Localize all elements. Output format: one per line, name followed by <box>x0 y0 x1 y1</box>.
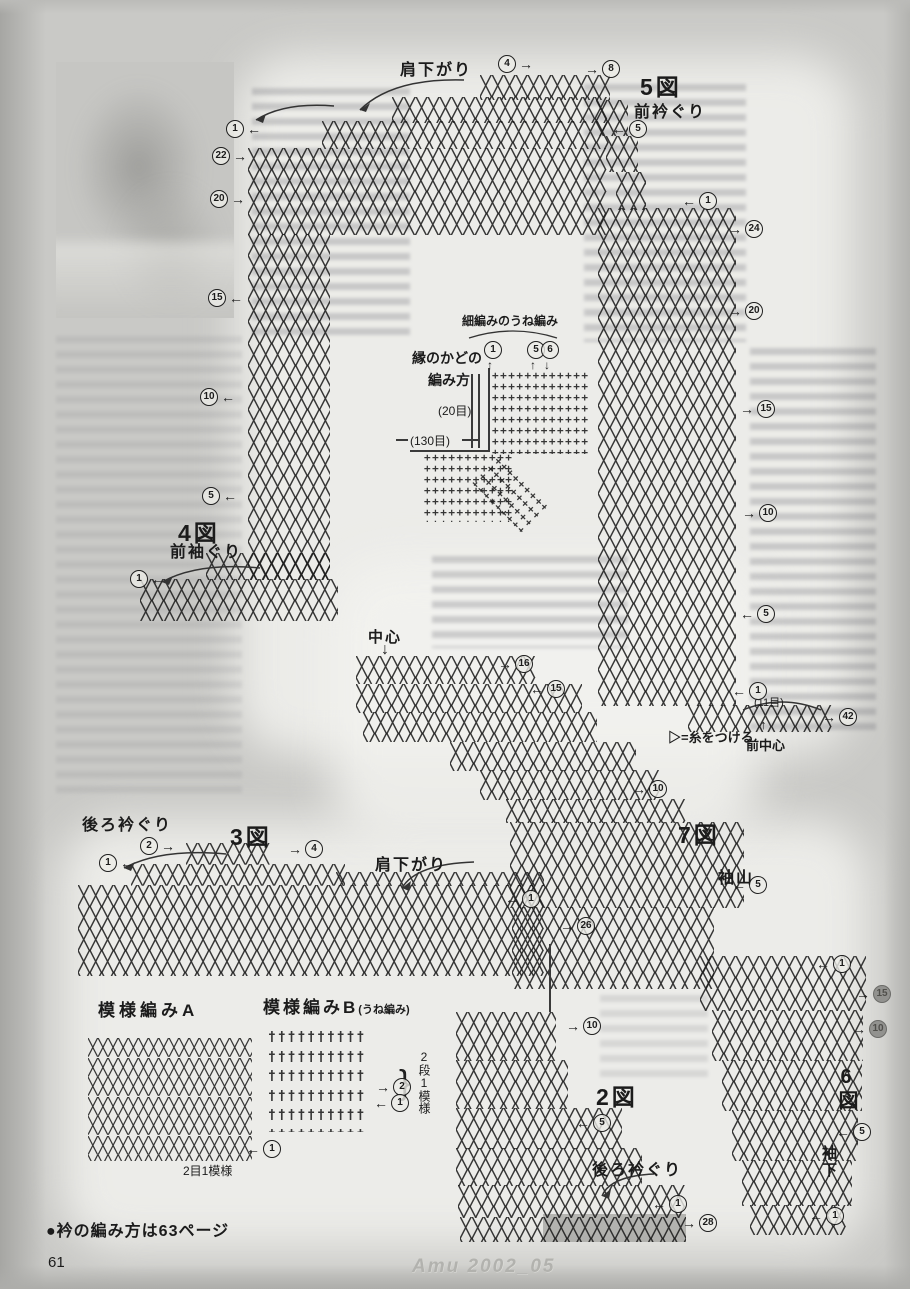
fig2-back-neck-label: 後ろ衿ぐり <box>592 1156 682 1180</box>
fig2-title: 2図 <box>596 1078 638 1112</box>
fig5-title: 5図 <box>640 68 682 102</box>
connector-line <box>549 944 551 1012</box>
circled-row-number: 1 <box>130 570 148 588</box>
corner-frame-line <box>488 368 490 452</box>
row1-curve-arrow <box>250 100 338 128</box>
circled-row-number: 1 <box>833 955 851 973</box>
row-callout-15: →15 <box>740 400 775 418</box>
circled-row-number: 10 <box>200 388 218 406</box>
callout-arrow-icon: → <box>822 710 836 724</box>
fig6-underarm-label: 袖下 <box>818 1145 839 1179</box>
row-callout-5: 5← <box>202 487 237 505</box>
showthrough-text <box>600 995 708 1079</box>
circled-row-number: 6 <box>541 341 559 359</box>
row-callout-16: →16 <box>498 655 533 673</box>
fig6-title: 6図 <box>832 1066 861 1112</box>
faded-photo <box>56 62 234 318</box>
row-callout-10: →10 <box>742 504 777 522</box>
fig3-shoulder-label: 肩下がり <box>375 851 447 875</box>
magazine-page: ╳╳╳╳╳╳╳╳╳╳╳ ╳╳╳╳╳╳╳╳╳╳╳╳╳╳╳╳╳╳╳╳╳╳╳╳╳╳╳╳… <box>0 0 910 1289</box>
row-callout-10: 10← <box>200 388 235 406</box>
fig7-title: 7図 <box>678 816 720 850</box>
callout-arrow-icon: → <box>161 839 175 853</box>
row-callout-15: 15← <box>208 289 243 307</box>
row-callout-22: 22→ <box>212 147 247 165</box>
row-callout-28: →28 <box>682 1214 717 1232</box>
crochet-chart-block: ++++++++++++ ++++++++++++ ++++++++++++ +… <box>492 370 590 454</box>
fig5-front-neck-label: 前衿ぐり <box>634 98 706 122</box>
row-callout-1: ←1 <box>816 955 851 973</box>
crochet-chart-block: ╳╳╳╳╳╳╳ ╳╳╳╳╳╳╳ ╳╳╳╳╳╳╳ ╳╳╳╳╳╳╳ ╳╳╳╳╳╳╳ … <box>248 234 330 580</box>
row-callout-5: ←5 <box>576 1114 611 1132</box>
row-callout-1: ←1 <box>682 192 717 210</box>
crochet-chart-block: ╳╳╳╳╳╳╳╳╳╳╳╳╳╳╳╳╳╳╳╳ ╳╳╳╳╳╳╳╳╳╳╳╳╳╳╳╳╳╳╳… <box>363 712 597 742</box>
fig3-back-neck-label: 後ろ衿ぐり <box>82 811 172 835</box>
circled-row-number: 42 <box>839 708 857 726</box>
callout-arrow-icon: ← <box>652 1197 666 1211</box>
pattern-b-repeat-label: 2段1模様 <box>416 1050 433 1114</box>
dash-line <box>396 439 408 441</box>
row-callout-5: ←5 <box>740 605 775 623</box>
callout-arrow-icon: ← <box>809 1209 823 1223</box>
callout-arrow-icon: ← <box>247 122 261 136</box>
circled-row-number: 1 <box>749 682 767 700</box>
callout-arrow-icon: ← <box>612 122 626 136</box>
crochet-chart-block: ╳╳╳╳╳╳╳╳╳╳╳╳╳╳╳╳╳ ╳╳╳╳╳╳╳╳╳╳╳╳╳╳╳╳╳ ╳╳╳╳… <box>88 1038 252 1161</box>
circled-row-number: 16 <box>515 655 533 673</box>
callout-arrow-icon: ← <box>682 194 696 208</box>
stitch-count-20: (20目) <box>438 402 471 419</box>
shoulder-curve-arrow <box>352 74 470 118</box>
row-callout-10: →10 <box>566 1017 601 1035</box>
callout-arrow-icon: ← <box>120 856 134 870</box>
collar-note: ●衿の編み方は63ページ <box>46 1217 229 1241</box>
row-callout-10: →10 <box>852 1020 887 1038</box>
circled-row-number: 2 <box>140 837 158 855</box>
row-callout-1: 1 <box>484 341 502 359</box>
attach-yarn-note: ▷=糸をつける <box>668 727 754 746</box>
ridge-stitch-label: 細編みのうね編み <box>462 312 558 329</box>
row-callout-20: 20→ <box>210 190 245 208</box>
circled-row-number: 5 <box>593 1114 611 1132</box>
circled-row-number: 1 <box>484 341 502 359</box>
down-arrow-icon: ↓ <box>544 358 550 372</box>
circled-row-number: 5 <box>757 605 775 623</box>
circled-row-number: 5 <box>749 876 767 894</box>
up-arrow-icon: ↑ <box>487 358 493 372</box>
callout-arrow-icon: → <box>231 192 245 206</box>
row-callout-8: →8 <box>585 60 620 78</box>
row-callout-1: ←1 <box>374 1094 409 1112</box>
callout-arrow-icon: ← <box>740 607 754 621</box>
callout-arrow-icon: → <box>728 222 742 236</box>
row-callout-1: ←1 <box>732 682 767 700</box>
callout-arrow-icon: ← <box>229 291 243 305</box>
circled-row-number: 1 <box>263 1140 281 1158</box>
crochet-chart-block: ╳╳╳╳╳╳╳╳╳ ╳╳╳╳╳╳╳╳╳ ╳╳╳╳╳╳╳╳╳ <box>456 1012 556 1061</box>
circled-row-number: 10 <box>583 1017 601 1035</box>
pattern-a-repeat-label: 2目1模様 <box>183 1162 232 1179</box>
callout-arrow-icon: ← <box>221 390 235 404</box>
callout-arrow-icon: → <box>852 1022 866 1036</box>
row-callout-1: 1← <box>99 854 134 872</box>
callout-arrow-icon: → <box>566 1019 580 1033</box>
row-callout-20: →20 <box>728 302 763 320</box>
circled-row-number: 22 <box>212 147 230 165</box>
crochet-chart-block: ╳╳╳╳╳╳╳╳╳╳╳╳╳╳╳╳╳╳╳╳╳╳╳╳ ╳╳╳╳╳╳╳╳╳╳╳╳╳╳╳… <box>322 121 610 149</box>
row-callout-10: →10 <box>632 780 667 798</box>
callout-arrow-icon: → <box>585 62 599 76</box>
circled-row-number: 15 <box>208 289 226 307</box>
callout-arrow-icon: → <box>856 987 870 1001</box>
row-callout-1: ←1 <box>505 890 540 908</box>
callout-arrow-icon: ← <box>530 682 544 696</box>
bracket-line <box>478 374 480 448</box>
down-arrow-icon: ↓ <box>381 641 389 659</box>
circled-row-number: 5 <box>202 487 220 505</box>
row-callout-1: 1← <box>130 570 165 588</box>
edge-corner-title-1: 縁のかどの <box>412 348 482 368</box>
circled-row-number: 15 <box>547 680 565 698</box>
dash-line <box>462 439 478 441</box>
circled-row-number: 1 <box>826 1207 844 1225</box>
callout-arrow-icon: → <box>376 1080 390 1094</box>
crochet-chart-block: ╳╳╳╳╳╳╳╳╳╳ ╳╳╳╳╳╳╳╳╳╳ ╳╳╳╳╳╳╳╳╳╳ <box>456 1060 568 1109</box>
scan-edge-shadow <box>884 0 910 1289</box>
callout-arrow-icon: → <box>632 782 646 796</box>
callout-arrow-icon: → <box>560 919 574 933</box>
fig3-title: 3図 <box>230 818 272 852</box>
callout-arrow-icon: ← <box>732 878 746 892</box>
scan-edge-shadow <box>0 0 910 14</box>
circled-row-number: 1 <box>391 1094 409 1112</box>
callout-arrow-icon: ← <box>576 1116 590 1130</box>
circled-row-number: 4 <box>498 55 516 73</box>
row-callout-6: 6 <box>541 341 559 359</box>
row-callout-1: ←1 <box>246 1140 281 1158</box>
up-arrow-icon: ↑ <box>760 717 767 732</box>
circled-row-number: 1 <box>99 854 117 872</box>
circled-row-number: 1 <box>226 120 244 138</box>
row-callout-5: ←5 <box>836 1123 871 1141</box>
crochet-chart-block: ╳╳╳╳╳╳╳╳╳╳╳╳╳╳╳╳╳╳╳ ╳╳╳╳╳╳╳╳╳╳╳╳╳╳╳╳╳╳╳ <box>460 1217 686 1242</box>
stitch-count-130: (130目) <box>410 432 450 449</box>
row-callout-1: 1← <box>226 120 261 138</box>
callout-arrow-icon: → <box>682 1216 696 1230</box>
circled-row-number: 5 <box>853 1123 871 1141</box>
row-callout-4: 4→ <box>498 55 533 73</box>
crochet-chart-block: ╳╳╳╳╳╳╳╳╳╳╳╳╳╳╳╳╳╳╳╳╳╳╳╳╳╳╳╳╳╳ ╳╳╳╳╳╳╳╳╳… <box>248 148 610 235</box>
magazine-name: Amu 2002_05 <box>412 1256 555 1278</box>
callout-arrow-icon: ← <box>246 1142 260 1156</box>
circled-row-number: 15 <box>757 400 775 418</box>
pattern-b-subtitle: (うね編み) <box>358 1004 409 1016</box>
circled-row-number: 15 <box>873 985 891 1003</box>
circled-row-number: 20 <box>210 190 228 208</box>
circled-row-number: 24 <box>745 220 763 238</box>
row-callout-1: ←1 <box>809 1207 844 1225</box>
callout-arrow-icon: ← <box>836 1125 850 1139</box>
callout-arrow-icon: → <box>233 149 247 163</box>
callout-arrow-icon: → <box>498 657 512 671</box>
ridge-label-brace <box>466 328 560 340</box>
row-callout-26: →26 <box>560 917 595 935</box>
row-callout-5: ←5 <box>732 876 767 894</box>
circled-row-number: 5 <box>629 120 647 138</box>
callout-arrow-icon: → <box>728 304 742 318</box>
circled-row-number: 26 <box>577 917 595 935</box>
fig4-armhole-label: 前袖ぐり <box>170 538 242 562</box>
up-arrow-icon: ↑ <box>530 358 536 372</box>
edge-corner-title-2: 編み方 <box>428 370 470 390</box>
callout-arrow-icon: ← <box>505 892 519 906</box>
circled-row-number: 8 <box>602 60 620 78</box>
pattern-a-title: 模様編みA <box>98 996 198 1021</box>
row-callout-1: ←1 <box>652 1195 687 1213</box>
row-callout-4: →4 <box>288 840 323 858</box>
row-callout-42: →42 <box>822 708 857 726</box>
callout-arrow-icon: → <box>742 506 756 520</box>
page-number: 61 <box>48 1254 65 1271</box>
circled-row-number: 10 <box>759 504 777 522</box>
callout-arrow-icon: ← <box>223 489 237 503</box>
row-callout-15: →15 <box>856 985 891 1003</box>
pattern-b-title-text: 模様編みB <box>263 998 358 1017</box>
row-callout-24: →24 <box>728 220 763 238</box>
row-callout-5: ←5 <box>612 120 647 138</box>
crochet-chart-block: †††††††††† †††††††††† †††††††††† †††††††… <box>268 1028 364 1132</box>
callout-arrow-icon: → <box>519 57 533 71</box>
crochet-chart-block: ╳╳╳ ╳╳╳ <box>616 172 646 210</box>
circled-row-number: 10 <box>649 780 667 798</box>
circled-row-number: 1 <box>522 890 540 908</box>
callout-arrow-icon: → <box>740 402 754 416</box>
callout-arrow-icon: ← <box>816 957 830 971</box>
crochet-chart-block: ╳╳╳╳╳╳╳╳╳╳╳╳╳╳╳ ╳╳╳╳╳╳╳╳╳╳╳╳╳╳╳ <box>506 799 686 823</box>
corner-frame-line <box>410 450 488 452</box>
row-callout-2: 2→ <box>140 837 175 855</box>
circled-row-number: 1 <box>669 1195 687 1213</box>
crochet-chart-block: ╳╳╳╳╳╳╳╳╳╳╳╳ ╳╳╳╳╳╳╳╳╳╳╳╳ ╳╳╳╳╳╳╳╳╳╳╳╳ ╳… <box>598 208 736 706</box>
circled-row-number: 28 <box>699 1214 717 1232</box>
callout-arrow-icon: ← <box>151 572 165 586</box>
crochet-chart-block: ╳╳╳ ╳╳╳ <box>606 136 638 172</box>
circled-row-number: 1 <box>699 192 717 210</box>
callout-arrow-icon: ← <box>374 1096 388 1110</box>
callout-arrow-icon: ← <box>732 684 746 698</box>
circled-row-number: 10 <box>869 1020 887 1038</box>
row-callout-15: ←15 <box>530 680 565 698</box>
crochet-chart-block: ╳╳╳╳╳╳╳╳╳╳╳╳╳╳╳╳ ╳╳╳╳╳╳╳╳╳╳╳╳╳╳╳╳ <box>450 742 636 771</box>
circled-row-number: 20 <box>745 302 763 320</box>
crochet-chart-block: ╳╳╳╳╳╳╳╳╳╳╳╳╳╳╳╳╳╳╳╳╳╳╳╳╳╳╳╳╳╳╳╳╳╳╳╳╳╳╳ … <box>78 885 544 976</box>
crochet-chart-block: ╳╳╳╳╳╳╳╳╳╳╳╳╳ ╳╳╳╳╳╳╳╳╳╳╳╳╳ ╳╳╳╳╳╳╳╳╳╳╳╳… <box>712 1010 863 1061</box>
callout-arrow-icon: → <box>288 842 302 856</box>
fig5-shoulder-label: 肩下がり <box>400 56 472 80</box>
row1-curve-arrow <box>156 560 264 588</box>
scan-edge-shadow <box>0 0 46 1289</box>
front-center-label: 前中心 <box>746 735 785 754</box>
circled-row-number: 4 <box>305 840 323 858</box>
pattern-b-title: 模様編みB(うね編み) <box>263 993 410 1018</box>
